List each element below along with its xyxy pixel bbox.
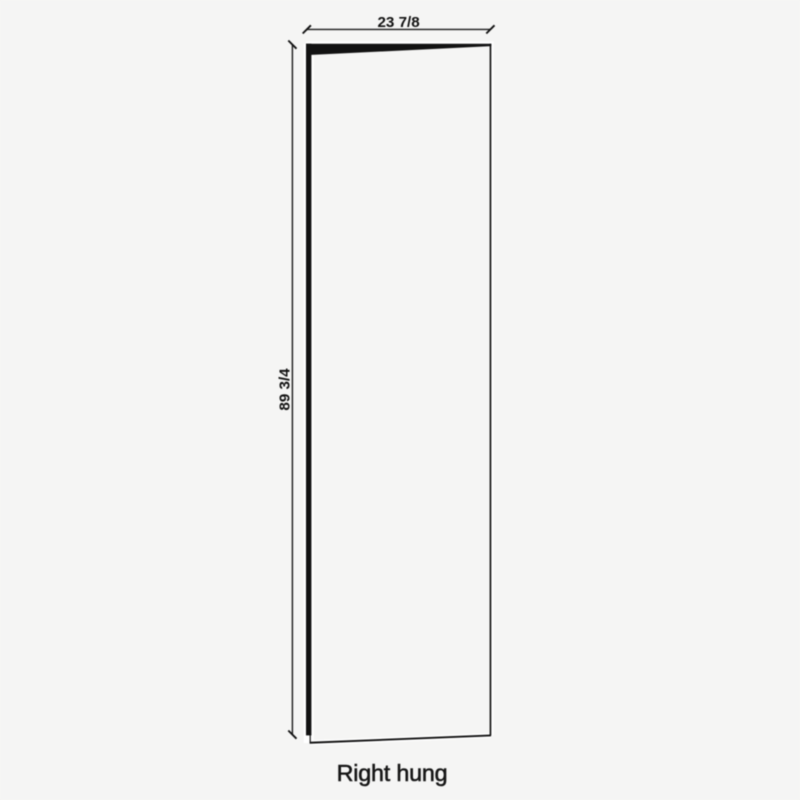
svg-text:Right hung: Right hung [337, 760, 448, 786]
svg-text:23 7/8: 23 7/8 [377, 14, 419, 31]
svg-text:89 3/4: 89 3/4 [276, 368, 293, 411]
